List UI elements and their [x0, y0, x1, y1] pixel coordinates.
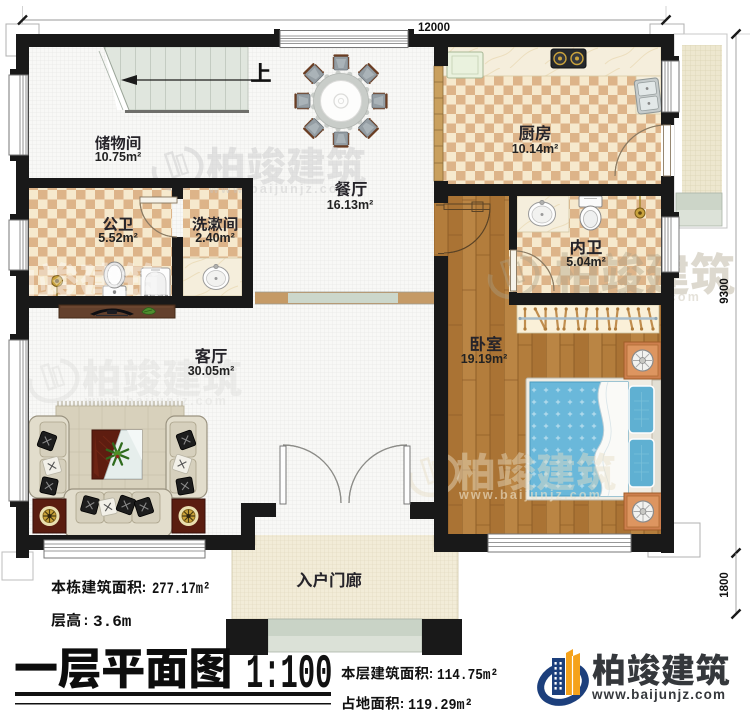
svg-text::: : [140, 581, 148, 597]
svg-text:www.baijunjz.com: www.baijunjz.com [84, 394, 228, 408]
svg-text:1800: 1800 [719, 572, 731, 598]
svg-text:10.75m²: 10.75m² [95, 150, 142, 164]
svg-text::: : [398, 697, 406, 712]
svg-text::: : [82, 614, 90, 630]
svg-text:19.19m²: 19.19m² [461, 352, 508, 366]
svg-text:www.baijunjz.com: www.baijunjz.com [458, 488, 602, 502]
svg-text:9300: 9300 [719, 278, 731, 304]
svg-text:2.40m²: 2.40m² [195, 231, 235, 245]
svg-text:www.baijunjz.com: www.baijunjz.com [591, 687, 726, 702]
svg-text:3.6m: 3.6m [93, 613, 132, 631]
svg-text:119.29m²: 119.29m² [408, 697, 473, 714]
svg-text:114.75m²: 114.75m² [437, 667, 498, 684]
svg-text:30.05m²: 30.05m² [188, 364, 235, 378]
svg-text:12000: 12000 [418, 22, 450, 34]
svg-text:5.52m²: 5.52m² [98, 231, 138, 245]
svg-text:10.14m²: 10.14m² [512, 142, 559, 156]
svg-text:5.04m²: 5.04m² [566, 255, 606, 269]
svg-text::: : [427, 667, 435, 682]
svg-text:16.13m²: 16.13m² [327, 198, 374, 212]
svg-text:277.17m²: 277.17m² [152, 581, 210, 599]
